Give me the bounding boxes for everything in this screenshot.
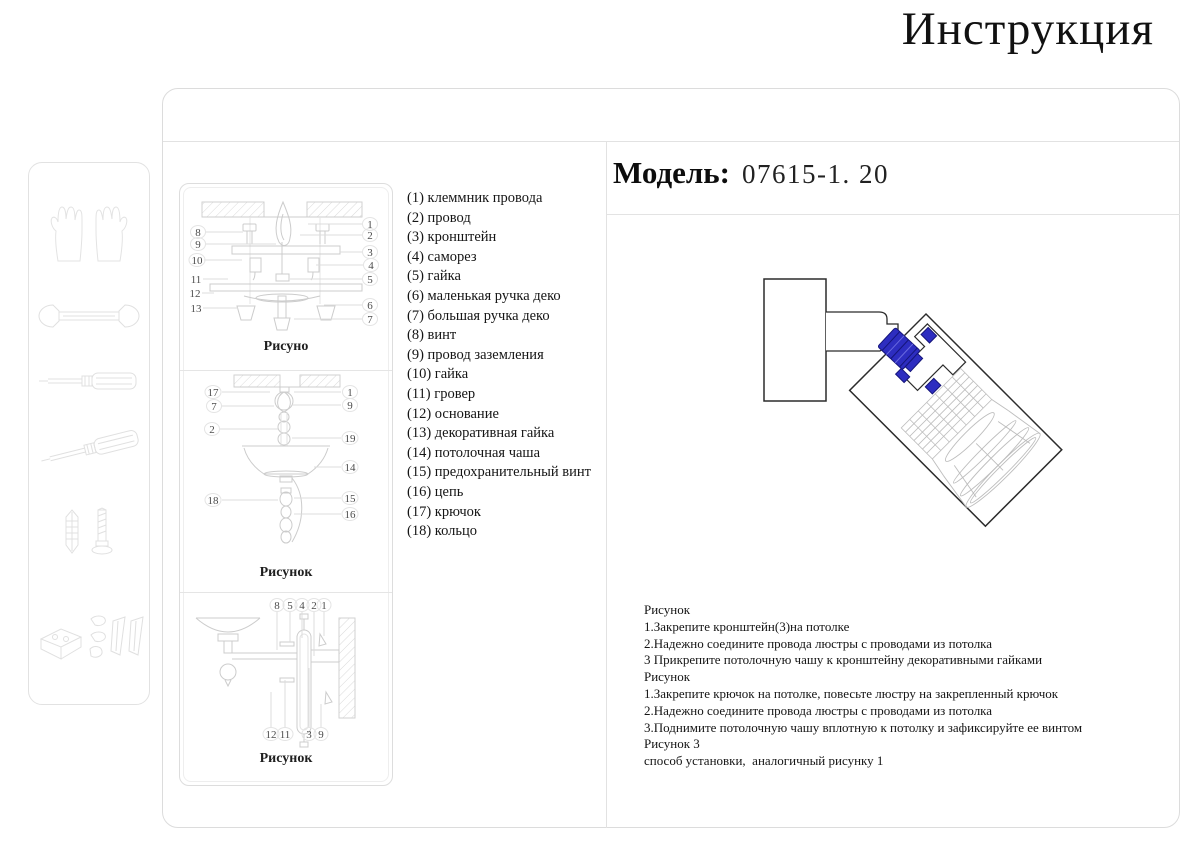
tools-sidebar [28, 162, 150, 705]
wall-plate [764, 279, 826, 401]
parts-list-item: (9) провод заземления [407, 346, 603, 366]
top-divider [163, 141, 1179, 142]
wrench-icon [29, 301, 149, 331]
figure-callout: 3 [306, 729, 312, 741]
instruction-line: 3 Прикрепите потолочную чашу к кронштейн… [644, 652, 1082, 669]
figure-callout: 11 [191, 274, 202, 286]
figure-callout: 2 [367, 230, 373, 242]
figure-callout: 18 [208, 495, 220, 507]
figure-callout: 2 [311, 600, 317, 612]
parts-list-item: (16) цепь [407, 483, 603, 503]
mounting-hardware-icon [29, 609, 149, 669]
vertical-divider [606, 141, 607, 828]
figure-callout: 8 [195, 227, 201, 239]
instruction-line: Рисунок [644, 669, 1082, 686]
parts-list-item: (7) большая ручка деко [407, 307, 603, 327]
figure-callout: 7 [211, 401, 217, 413]
screw-and-dowel-icon [29, 507, 149, 557]
figure-callout: 12 [266, 729, 277, 741]
parts-list-item: (6) маленькая ручка деко [407, 287, 603, 307]
instruction-line: 1.Закрепите крючок на потолке, повесьте … [644, 686, 1082, 703]
figure-callout: 15 [345, 493, 357, 505]
model-row: Модель: 07615-1. 20 [613, 155, 889, 191]
figure-callout: 9 [347, 400, 353, 412]
parts-list-item: (10) гайка [407, 365, 603, 385]
parts-list: (1) клеммник провода (2) провод (3) крон… [407, 189, 603, 542]
figure-callout: 8 [274, 600, 280, 612]
installation-instructions: Рисунок 1.Закрепите кронштейн(3)на потол… [644, 602, 1082, 770]
figure-1-drawing [202, 202, 362, 330]
figures-panel: 8 9 10 11 12 13 1 2 3 4 5 6 7 Рисуно [179, 183, 393, 786]
figure-callout: 19 [345, 433, 357, 445]
figure-callout: 4 [299, 600, 305, 612]
instruction-line: 2.Надежно соедините провода люстры с про… [644, 636, 1082, 653]
figure-callout: 5 [287, 600, 293, 612]
figure-2-caption: Рисунок [180, 565, 392, 581]
instruction-line: 3.Поднимите потолочную чашу вплотную к п… [644, 720, 1082, 737]
figure-callout: 1 [321, 600, 327, 612]
figure-callout: 16 [345, 509, 357, 521]
figure-1-caption: Рисуно [180, 339, 392, 355]
figure-callout: 13 [191, 303, 203, 315]
instruction-line: 1.Закрепите кронштейн(3)на потолке [644, 619, 1082, 636]
instruction-line: Рисунок [644, 602, 1082, 619]
figure-1-callout-rings [189, 218, 379, 326]
parts-list-item: (4) саморез [407, 248, 603, 268]
page-title: Инструкция [902, 2, 1154, 56]
figure-callout: 10 [192, 255, 204, 267]
figure-callout: 9 [318, 729, 324, 741]
figure-3-caption: Рисунок [180, 751, 392, 767]
parts-list-item: (17) крючок [407, 503, 603, 523]
figure-callout: 7 [367, 314, 373, 326]
instruction-line: Рисунок 3 [644, 736, 1082, 753]
screwdriver-icon [29, 369, 149, 393]
model-number: 07615-1. 20 [742, 159, 889, 190]
instruction-line: 2.Надежно соедините провода люстры с про… [644, 703, 1082, 720]
figure-callout: 1 [347, 387, 353, 399]
figure-2-hook-chain-diagram: 17 7 2 18 1 9 19 14 15 16 [180, 370, 394, 592]
figure-callout: 11 [280, 729, 291, 741]
figure-callout: 2 [209, 424, 215, 436]
figure-callout: 3 [367, 247, 373, 259]
figure-callout: 4 [368, 260, 374, 272]
model-label: Модель: [613, 155, 730, 191]
figure-callout: 14 [345, 462, 357, 474]
parts-list-item: (14) потолочная чаша [407, 444, 603, 464]
parts-list-item: (11) гровер [407, 385, 603, 405]
figure-3-drawing [196, 614, 355, 747]
spotlight-lamp-drawing [741, 254, 1101, 554]
parts-list-item: (15) предохранительный винт [407, 463, 603, 483]
model-underline [607, 214, 1180, 215]
screwdriver-angled-icon [29, 419, 149, 471]
figure-callout: 9 [195, 239, 201, 251]
parts-list-item: (5) гайка [407, 267, 603, 287]
parts-list-item: (3) кронштейн [407, 228, 603, 248]
figure-callout: 6 [367, 300, 373, 312]
parts-list-item: (2) провод [407, 209, 603, 229]
figure-callout: 17 [208, 387, 220, 399]
instruction-line: способ установки, аналогичный рисунку 1 [644, 753, 1082, 770]
gloves-icon [29, 189, 149, 265]
parts-list-item: (8) винт [407, 326, 603, 346]
figure-callout: 5 [367, 274, 373, 286]
parts-list-item: (12) основание [407, 405, 603, 425]
parts-list-item: (13) декоративная гайка [407, 424, 603, 444]
figure-callout: 12 [190, 288, 201, 300]
main-sheet: 8 9 10 11 12 13 1 2 3 4 5 6 7 Рисуно [162, 88, 1180, 828]
parts-list-item: (1) клеммник провода [407, 189, 603, 209]
parts-list-item: (18) кольцо [407, 522, 603, 542]
figure-2-drawing [234, 375, 340, 543]
